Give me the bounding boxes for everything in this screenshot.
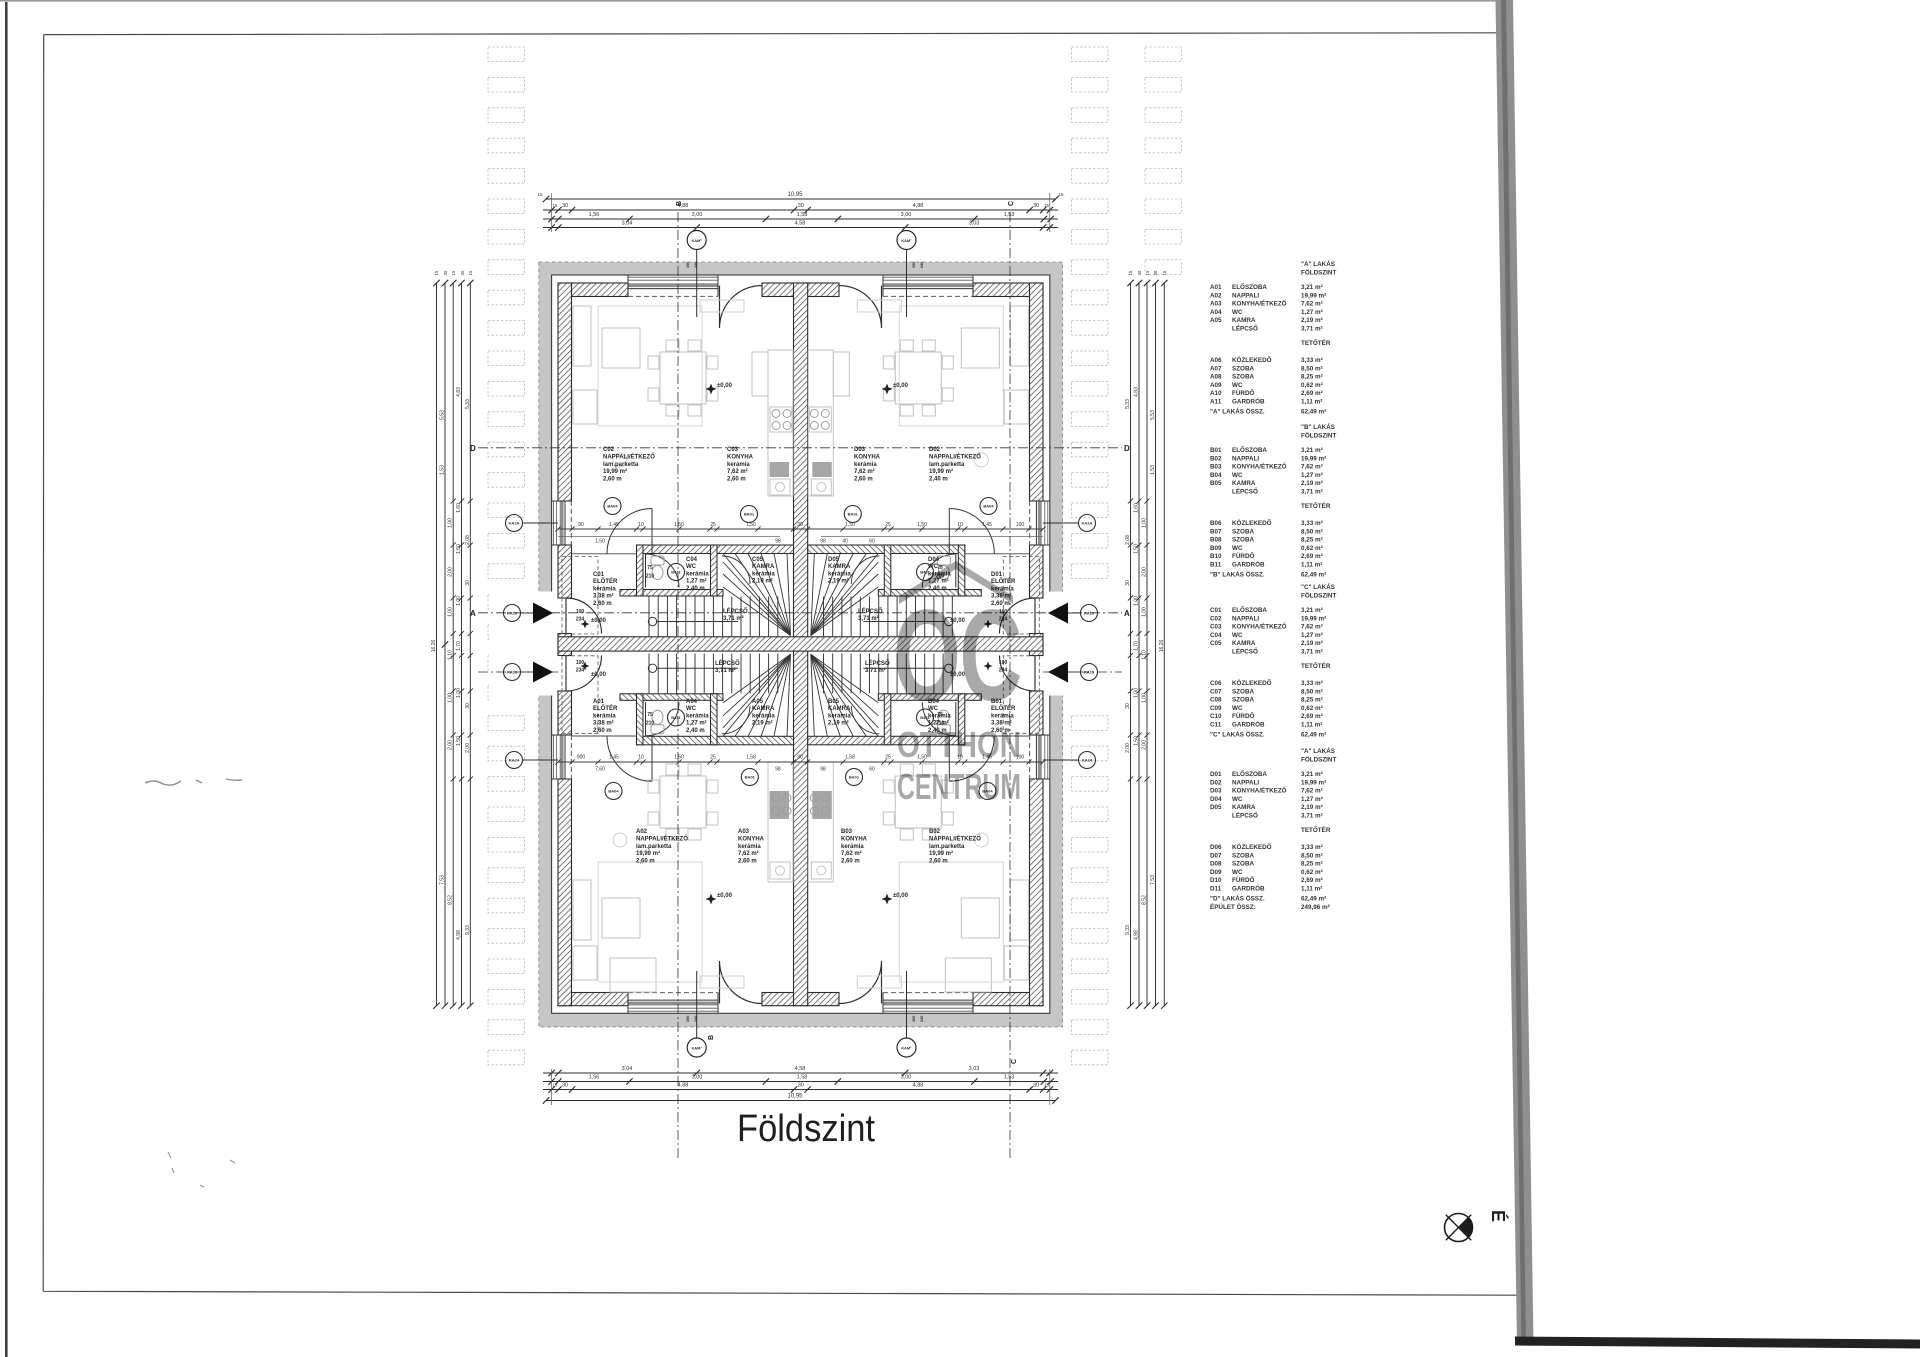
svg-text:3,71 m²: 3,71 m² [1301,813,1323,820]
svg-text:30: 30 [1137,270,1142,275]
svg-text:1,50: 1,50 [595,539,605,545]
svg-text:FÖLDSZINT: FÖLDSZINT [1301,267,1336,276]
svg-text:BA04: BA04 [608,789,619,794]
svg-text:1,45: 1,45 [982,522,992,528]
svg-text:C04: C04 [686,557,698,563]
svg-text:LÉPCSŐ: LÉPCSŐ [1232,487,1258,496]
svg-text:KAMRA: KAMRA [752,706,775,712]
svg-text:1,58: 1,58 [746,755,756,761]
svg-text:Földszint: Földszint [737,1108,875,1150]
svg-text:B05: B05 [828,699,840,705]
svg-text:8,25 m²: 8,25 m² [1301,537,1323,544]
svg-text:FÜRDŐ: FÜRDŐ [1232,388,1254,397]
svg-text:30: 30 [1125,580,1131,586]
svg-text:2,00: 2,00 [1142,740,1148,750]
svg-text:249,96 m²: 249,96 m² [1301,904,1330,911]
svg-text:2,60 m: 2,60 m [929,859,948,865]
svg-text:8,50 m²: 8,50 m² [1301,852,1323,859]
svg-text:7,53: 7,53 [440,875,446,885]
svg-text:GARDRÓB: GARDRÓB [1232,884,1265,893]
svg-text:7,62 m²: 7,62 m² [854,468,875,475]
svg-text:7,62 m²: 7,62 m² [727,468,748,475]
svg-text:D11: D11 [1210,886,1222,893]
svg-text:kerámia: kerámia [727,462,750,468]
svg-text:19,99 m²: 19,99 m² [1301,455,1326,462]
svg-text:1,27 m²: 1,27 m² [1301,632,1323,639]
svg-text:C08: C08 [1210,697,1222,704]
svg-text:8,50 m²: 8,50 m² [1301,528,1323,535]
svg-text:19,99 m²: 19,99 m² [1301,615,1326,622]
svg-text:LÉPCSŐ: LÉPCSŐ [715,659,740,667]
svg-text:15: 15 [537,192,543,197]
svg-text:1,50: 1,50 [917,522,927,528]
svg-text:2,19 m²: 2,19 m² [1301,480,1323,487]
svg-text:2,60 m: 2,60 m [636,859,655,865]
svg-text:240: 240 [920,262,924,268]
svg-text:1,00: 1,00 [456,596,462,606]
svg-text:WC: WC [1232,869,1243,876]
svg-text:WC: WC [1232,796,1243,803]
svg-text:A07: A07 [1210,365,1222,372]
svg-text:WC: WC [1232,382,1243,389]
svg-text:2,69 m²: 2,69 m² [1301,713,1323,720]
svg-text:2,00: 2,00 [465,743,471,753]
svg-text:A02: A02 [636,829,648,835]
svg-text:NAPPALI/ÉTKEZŐ: NAPPALI/ÉTKEZŐ [603,452,655,460]
svg-text:60: 60 [869,539,875,545]
svg-text:4,58: 4,58 [795,221,806,227]
svg-text:3,21 m²: 3,21 m² [1301,447,1323,454]
svg-text:FÖLDSZINT: FÖLDSZINT [1301,754,1336,763]
svg-text:KONYHA/ÉTKEZŐ: KONYHA/ÉTKEZŐ [1232,786,1287,795]
svg-text:2,60 m: 2,60 m [727,477,746,483]
svg-text:25: 25 [885,522,891,528]
svg-text:3,04: 3,04 [622,1066,633,1072]
svg-text:4,58: 4,58 [795,1066,806,1072]
svg-text:10,95: 10,95 [787,192,803,198]
svg-text:30: 30 [798,203,804,209]
svg-text:WC: WC [1232,705,1243,712]
svg-text:98: 98 [820,539,826,545]
svg-text:B10: B10 [1210,553,1222,560]
svg-text:lam.parketta: lam.parketta [603,462,639,468]
svg-text:B431: B431 [671,715,681,720]
svg-text:1,56: 1,56 [589,212,600,218]
svg-text:WC: WC [1232,545,1243,552]
svg-text:8,52: 8,52 [1142,895,1148,905]
svg-text:WC: WC [686,706,697,712]
svg-text:±0,00: ±0,00 [591,672,607,678]
svg-text:GARDRÓB: GARDRÓB [1232,397,1265,406]
svg-text:NAPPALI: NAPPALI [1232,615,1259,622]
svg-text:2,00: 2,00 [448,740,454,750]
svg-text:BA04: BA04 [607,504,618,509]
svg-text:C02: C02 [1210,615,1222,622]
svg-text:30: 30 [1033,203,1039,209]
svg-text:30: 30 [460,270,465,275]
svg-text:300: 300 [912,1016,916,1022]
svg-text:0,62 m²: 0,62 m² [1301,545,1323,552]
svg-text:1,11 m²: 1,11 m² [1301,722,1322,729]
svg-text:"A" LAKÁS ÖSSZ.: "A" LAKÁS ÖSSZ. [1210,407,1265,416]
svg-text:3,71 m²: 3,71 m² [715,667,736,674]
svg-text:1,45: 1,45 [609,755,619,761]
svg-text:FÜRDŐ: FÜRDŐ [1232,551,1254,560]
svg-text:15: 15 [1162,270,1167,275]
svg-text:1,27 m²: 1,27 m² [686,578,707,585]
svg-text:SZOBA: SZOBA [1232,852,1254,859]
svg-text:1,58: 1,58 [797,1075,808,1081]
svg-text:"C" LAKÁS: "C" LAKÁS [1301,582,1335,591]
svg-text:19,99 m²: 19,99 m² [603,468,627,475]
svg-text:1,00: 1,00 [448,693,454,703]
svg-text:3,71 m²: 3,71 m² [1301,489,1323,496]
svg-text:OC: OC [893,582,1021,728]
svg-text:2,40 m: 2,40 m [929,477,948,483]
svg-text:1,11 m²: 1,11 m² [1301,562,1322,569]
svg-text:LÉPCSŐ: LÉPCSŐ [865,659,890,667]
svg-text:210: 210 [646,721,655,727]
svg-text:KONYHA/ÉTKEZŐ: KONYHA/ÉTKEZŐ [1232,299,1287,308]
svg-text:30: 30 [562,1083,568,1089]
svg-text:SZOBA: SZOBA [1232,374,1254,381]
svg-text:15: 15 [1145,270,1150,275]
svg-text:1,56: 1,56 [589,1075,600,1081]
svg-text:ELŐSZOBA: ELŐSZOBA [1232,445,1267,454]
svg-text:FÜRDŐ: FÜRDŐ [1232,875,1254,884]
svg-text:D02: D02 [1210,779,1222,786]
svg-text:7,62 m²: 7,62 m² [1301,464,1323,471]
svg-text:D07: D07 [1210,852,1222,859]
svg-text:3,21 m²: 3,21 m² [1301,284,1323,291]
svg-text:1,10: 1,10 [1142,650,1148,660]
svg-text:C10: C10 [1210,713,1222,720]
svg-text:C09: C09 [1210,705,1222,712]
svg-text:19,99 m²: 19,99 m² [929,468,953,475]
svg-text:B05: B05 [1210,480,1222,487]
svg-text:8,50 m²: 8,50 m² [1301,365,1323,372]
svg-text:KAMRA: KAMRA [1232,804,1256,811]
svg-text:3,03: 3,03 [969,221,980,227]
svg-text:C04: C04 [1210,632,1222,639]
svg-text:BA01: BA01 [848,512,859,517]
svg-text:2,08: 2,08 [1125,535,1131,545]
svg-text:30: 30 [465,580,471,586]
svg-text:2,60 m: 2,60 m [593,601,612,607]
svg-text:1,53: 1,53 [1004,1075,1015,1081]
svg-text:BA01: BA01 [744,512,755,517]
svg-text:1,00: 1,00 [1142,693,1148,703]
svg-text:A03: A03 [738,829,750,835]
svg-text:KA19: KA19 [1084,611,1095,616]
svg-text:±0,00: ±0,00 [717,893,733,899]
svg-text:8,50 m²: 8,50 m² [1301,688,1323,695]
svg-text:2,40 m: 2,40 m [686,728,705,734]
svg-text:lam.parketta: lam.parketta [929,462,965,468]
svg-text:"A" LAKÁS: "A" LAKÁS [1301,746,1335,755]
svg-text:19,99 m²: 19,99 m² [636,850,660,857]
svg-text:2,19 m²: 2,19 m² [828,578,849,585]
svg-text:D01: D01 [991,572,1003,578]
svg-text:FÜRDŐ: FÜRDŐ [1232,711,1254,720]
svg-text:kerámia: kerámia [738,844,761,850]
svg-text:25: 25 [710,755,716,761]
svg-text:KAM°: KAM° [901,1047,912,1051]
svg-text:A: A [1124,609,1130,618]
svg-text:15: 15 [468,270,473,275]
svg-text:WC: WC [1232,472,1243,479]
svg-text:10: 10 [638,522,644,528]
svg-text:3,00: 3,00 [901,1075,912,1081]
svg-text:A06: A06 [1210,357,1222,364]
svg-text:"A" LAKÁS: "A" LAKÁS [1301,259,1335,268]
svg-text:7,53: 7,53 [1150,875,1156,885]
svg-text:KONYHA: KONYHA [841,836,868,842]
svg-text:KAMRA: KAMRA [1232,480,1256,487]
svg-text:4,83: 4,83 [456,387,462,397]
svg-text:A09: A09 [1210,382,1222,389]
svg-text:1,00: 1,00 [1142,518,1148,528]
svg-text:KA24: KA24 [1082,758,1093,763]
svg-text:5,33: 5,33 [465,399,471,409]
svg-text:KAMRA: KAMRA [828,564,851,570]
svg-text:9,33: 9,33 [1125,925,1131,935]
svg-text:19,99 m²: 19,99 m² [929,850,953,857]
svg-text:B07: B07 [1210,528,1222,535]
svg-text:1,53: 1,53 [1004,212,1015,218]
svg-text:1,00: 1,00 [448,518,454,528]
svg-text:30: 30 [1153,270,1158,275]
svg-text:D: D [470,444,476,453]
svg-text:1,60: 1,60 [1134,503,1140,513]
svg-text:9,33: 9,33 [465,925,471,935]
svg-text:10: 10 [957,522,963,528]
svg-text:25: 25 [710,522,716,528]
svg-text:30: 30 [443,270,448,275]
svg-text:3,71 m²: 3,71 m² [1301,326,1323,333]
svg-text:1,50: 1,50 [674,755,684,761]
svg-text:B01: B01 [1210,447,1222,454]
svg-text:KÖZLEKEDŐ: KÖZLEKEDŐ [1232,355,1272,364]
svg-text:kerámia: kerámia [841,844,864,850]
svg-text:2,40 m: 2,40 m [686,586,705,592]
svg-text:TETŐTÉR: TETŐTÉR [1301,825,1331,834]
svg-text:C01: C01 [593,572,605,578]
svg-text:KAM°: KAM° [692,239,703,243]
svg-text:C: C [1008,201,1015,206]
svg-text:D01: D01 [1210,771,1222,778]
svg-text:C05: C05 [752,557,764,563]
svg-text:3,71 m²: 3,71 m² [1301,649,1323,656]
svg-text:kerámia: kerámia [854,462,877,468]
svg-text:62,49 m²: 62,49 m² [1301,732,1326,739]
svg-text:30: 30 [797,755,803,761]
svg-text:NAPPALI: NAPPALI [1232,779,1259,786]
svg-text:A: A [470,609,476,618]
svg-text:2,08: 2,08 [465,535,471,545]
svg-text:30: 30 [797,522,803,528]
svg-text:KA2A: KA2A [509,521,520,526]
svg-text:4,98: 4,98 [1134,930,1140,940]
svg-text:1,11 m²: 1,11 m² [1301,399,1322,406]
svg-text:10: 10 [638,755,644,761]
svg-text:1,50: 1,50 [1134,544,1140,554]
svg-text:2,60 m: 2,60 m [593,728,612,734]
svg-text:É: É [1488,1210,1509,1222]
svg-text:2,19 m²: 2,19 m² [1301,640,1323,647]
svg-text:0,62 m²: 0,62 m² [1301,705,1323,712]
svg-text:3,71 m²: 3,71 m² [858,615,879,622]
svg-text:3,21 m²: 3,21 m² [1301,771,1323,778]
svg-text:75: 75 [647,712,653,718]
svg-text:D04: D04 [928,557,940,563]
svg-text:ELŐSZOBA: ELŐSZOBA [1232,282,1267,291]
svg-text:KAMRA: KAMRA [1232,640,1256,647]
svg-text:SZOBA: SZOBA [1232,688,1254,695]
svg-text:KONYHA/ÉTKEZŐ: KONYHA/ÉTKEZŐ [1232,622,1287,631]
svg-text:2,69 m²: 2,69 m² [1301,877,1323,884]
svg-text:98: 98 [775,767,781,773]
svg-text:7,62 m²: 7,62 m² [1301,788,1323,795]
svg-text:8,25 m²: 8,25 m² [1301,861,1323,868]
svg-text:kerámia: kerámia [828,571,851,577]
svg-text:C11: C11 [1210,722,1222,729]
svg-text:KA2A: KA2A [1082,521,1093,526]
svg-text:D09: D09 [1210,869,1222,876]
svg-text:NAPPALI: NAPPALI [1232,455,1259,462]
svg-text:15: 15 [1058,192,1064,197]
svg-text:KONYHA: KONYHA [727,454,754,460]
svg-text:3,33 m²: 3,33 m² [1301,844,1323,851]
svg-text:kerámia: kerámia [752,571,775,577]
svg-text:40: 40 [842,539,848,545]
svg-text:62,49 m²: 62,49 m² [1301,572,1326,579]
svg-text:ELŐTÉR: ELŐTÉR [593,704,618,712]
svg-text:B08: B08 [1210,537,1222,544]
svg-text:KAMRA: KAMRA [1232,317,1256,324]
svg-text:LÉPCSŐ: LÉPCSŐ [1232,811,1258,820]
svg-text:75: 75 [647,565,653,571]
svg-text:240: 240 [694,262,698,268]
svg-text:4,83: 4,83 [1134,387,1140,397]
svg-text:19,99 m²: 19,99 m² [1301,779,1326,786]
svg-text:WC: WC [1232,632,1243,639]
svg-text:lam.parketta: lam.parketta [636,844,672,850]
svg-text:B: B [708,1035,715,1040]
svg-text:FÖLDSZINT: FÖLDSZINT [1301,430,1336,439]
svg-text:D: D [1124,444,1130,453]
svg-text:WC: WC [1232,309,1243,316]
svg-text:C03: C03 [1210,624,1222,631]
svg-text:7,62 m²: 7,62 m² [1301,301,1323,308]
svg-text:BA01: BA01 [745,775,756,780]
svg-text:5,33: 5,33 [1125,399,1131,409]
svg-text:15: 15 [434,270,439,275]
svg-text:KAM°: KAM° [692,1047,703,1051]
svg-text:±0,00: ±0,00 [893,893,909,899]
svg-text:SZOBA: SZOBA [1232,697,1254,704]
svg-text:30: 30 [1125,703,1131,709]
svg-text:ELŐSZOBA: ELŐSZOBA [1232,605,1267,614]
svg-text:300: 300 [912,262,916,268]
svg-text:kerámia: kerámia [828,713,851,719]
svg-text:GARDRÓB: GARDRÓB [1232,560,1265,569]
svg-text:1,00: 1,00 [1134,596,1140,606]
svg-text:C01: C01 [1210,607,1222,614]
svg-text:KA19: KA19 [1084,670,1095,675]
svg-text:4,88: 4,88 [913,203,924,209]
svg-text:kerámia: kerámia [686,713,709,719]
svg-text:KAM°: KAM° [901,239,912,243]
svg-text:TETŐTÉR: TETŐTÉR [1301,661,1331,670]
svg-text:0,62 m²: 0,62 m² [1301,382,1323,389]
svg-text:FÖLDSZINT: FÖLDSZINT [1301,590,1336,599]
svg-text:15: 15 [553,1083,558,1088]
svg-text:10,95: 10,95 [787,1094,803,1100]
svg-text:kerámia: kerámia [686,571,709,577]
svg-text:A05: A05 [1210,317,1222,324]
svg-text:LÉPCSŐ: LÉPCSŐ [1232,324,1258,333]
svg-text:1,27 m²: 1,27 m² [1301,472,1323,479]
svg-text:3,38 m²: 3,38 m² [593,593,614,600]
svg-text:A04: A04 [1210,309,1222,316]
svg-text:A01: A01 [593,699,605,705]
svg-text:KA19: KA19 [507,611,518,616]
svg-text:1,53: 1,53 [1150,465,1156,475]
svg-text:kerámia: kerámia [593,713,616,719]
svg-text:1,00: 1,00 [456,688,462,698]
svg-text:KA19: KA19 [507,670,518,675]
svg-text:16,26: 16,26 [1159,640,1165,653]
svg-text:kerámia: kerámia [593,586,616,592]
svg-text:OTTHON: OTTHON [897,724,1021,765]
svg-text:2,60 m: 2,60 m [738,859,757,865]
svg-text:KONYHA/ÉTKEZŐ: KONYHA/ÉTKEZŐ [1232,462,1287,471]
svg-text:C06: C06 [1210,680,1222,687]
svg-text:19,99 m²: 19,99 m² [1301,292,1326,299]
svg-text:2,69 m²: 2,69 m² [1301,390,1323,397]
svg-text:kerámia: kerámia [752,713,775,719]
svg-text:1,27 m²: 1,27 m² [1301,796,1323,803]
svg-text:100: 100 [1016,522,1025,528]
svg-text:2,19 m²: 2,19 m² [752,578,773,585]
svg-text:SZOBA: SZOBA [1232,528,1254,535]
svg-text:A02: A02 [1210,292,1222,299]
svg-text:B431: B431 [920,570,930,575]
svg-text:3,71 m²: 3,71 m² [723,615,744,622]
svg-text:NAPPALI/ÉTKEZŐ: NAPPALI/ÉTKEZŐ [929,834,981,842]
svg-text:A04: A04 [686,699,698,705]
svg-text:TETŐTÉR: TETŐTÉR [1301,338,1331,347]
svg-text:"C" LAKÁS ÖSSZ.: "C" LAKÁS ÖSSZ. [1210,730,1265,739]
svg-text:7,62 m²: 7,62 m² [1301,624,1323,631]
svg-text:B06: B06 [1210,520,1222,527]
svg-text:30: 30 [562,203,568,209]
svg-text:1,00: 1,00 [448,607,454,617]
svg-text:1,50: 1,50 [456,544,462,554]
svg-text:1,70: 1,70 [456,641,462,651]
svg-text:TETŐTÉR: TETŐTÉR [1301,501,1331,510]
svg-text:15: 15 [553,203,558,208]
svg-text:B11: B11 [1210,562,1222,569]
svg-text:15: 15 [1044,1083,1049,1088]
svg-text:234: 234 [576,668,585,674]
svg-text:D08: D08 [1210,861,1222,868]
svg-text:7,62 m²: 7,62 m² [841,850,862,857]
svg-text:900: 900 [577,755,586,761]
svg-text:KONYHA: KONYHA [854,454,881,460]
svg-text:B09: B09 [1210,545,1222,552]
